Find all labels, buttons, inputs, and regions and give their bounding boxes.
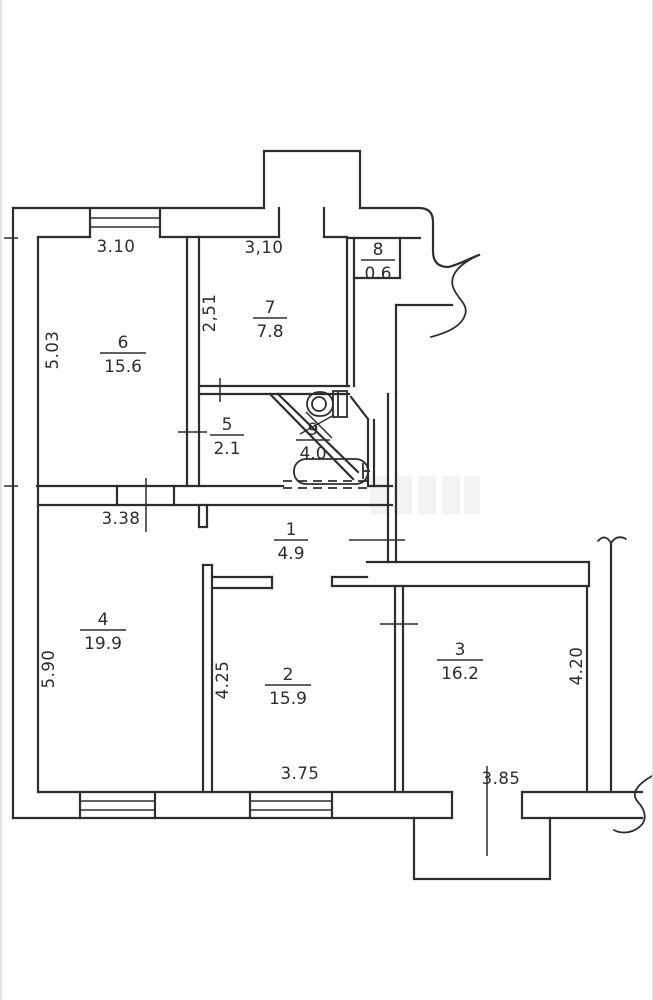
dim-room3-depth: 4.20 — [567, 647, 586, 686]
room-8-number: 8 — [373, 240, 384, 260]
room-3-number: 3 — [455, 640, 466, 660]
dim-room7-depth: 2,51 — [200, 294, 219, 333]
room-8-label: 8 0.6 — [361, 240, 395, 284]
room-5-number: 5 — [222, 415, 233, 435]
dim-top-left: 3.10 — [97, 237, 136, 256]
dimension-labels: 3.10 3,10 2,51 5.03 3.38 5.90 4.25 3.75 … — [39, 237, 586, 788]
room-9-area: 4.0 — [299, 444, 326, 464]
room-6-label: 6 15.6 — [100, 333, 146, 377]
room-1-number: 1 — [286, 520, 297, 540]
dimension-ticks — [4, 238, 487, 856]
roof-protrusion — [264, 151, 360, 208]
window-room2 — [250, 792, 332, 818]
wall-hook-top-right — [598, 537, 626, 543]
window-room6 — [90, 208, 160, 237]
room-6-area: 15.6 — [104, 357, 142, 377]
dim-room4-depth: 5.90 — [39, 650, 58, 689]
room-4-area: 19.9 — [84, 634, 122, 654]
dim-room2-depth: 4.25 — [213, 661, 232, 700]
dim-top-right: 3,10 — [245, 238, 284, 257]
room-2-number: 2 — [283, 665, 294, 685]
room-4-number: 4 — [98, 610, 109, 630]
room-7-area: 7.8 — [256, 322, 283, 342]
entrance-porch — [414, 818, 550, 879]
dim-room3-width: 3.85 — [482, 769, 521, 788]
break-line-top-right — [431, 255, 479, 337]
floor-plan-drawing: 1 4.9 2 15.9 3 16.2 4 19.9 5 2.1 6 15.6 — [2, 0, 654, 1000]
room-1-label: 1 4.9 — [274, 520, 308, 564]
room-5-area: 2.1 — [213, 439, 240, 459]
dim-room6-depth: 5.03 — [43, 331, 62, 370]
room-3-area: 16.2 — [441, 664, 479, 684]
room-2-label: 2 15.9 — [265, 665, 311, 709]
room-5-label: 5 2.1 — [210, 415, 244, 459]
watermark — [370, 476, 480, 514]
room-7-label: 7 7.8 — [253, 298, 287, 342]
dim-hall-width: 3.38 — [102, 509, 141, 528]
room-2-area: 15.9 — [269, 689, 307, 709]
dim-room2-width: 3.75 — [281, 764, 320, 783]
room-labels: 1 4.9 2 15.9 3 16.2 4 19.9 5 2.1 6 15.6 — [80, 240, 483, 709]
room-7-number: 7 — [265, 298, 276, 318]
room-9-number: 9 — [308, 420, 319, 440]
room-1-area: 4.9 — [277, 544, 304, 564]
room-4-label: 4 19.9 — [80, 610, 126, 654]
room-6-number: 6 — [118, 333, 129, 353]
window-room4 — [80, 792, 155, 818]
room-8-area: 0.6 — [364, 264, 391, 284]
floor-plan-page: 1 4.9 2 15.9 3 16.2 4 19.9 5 2.1 6 15.6 — [0, 0, 654, 1000]
room-3-label: 3 16.2 — [437, 640, 483, 684]
break-line-bottom-right — [614, 776, 652, 832]
